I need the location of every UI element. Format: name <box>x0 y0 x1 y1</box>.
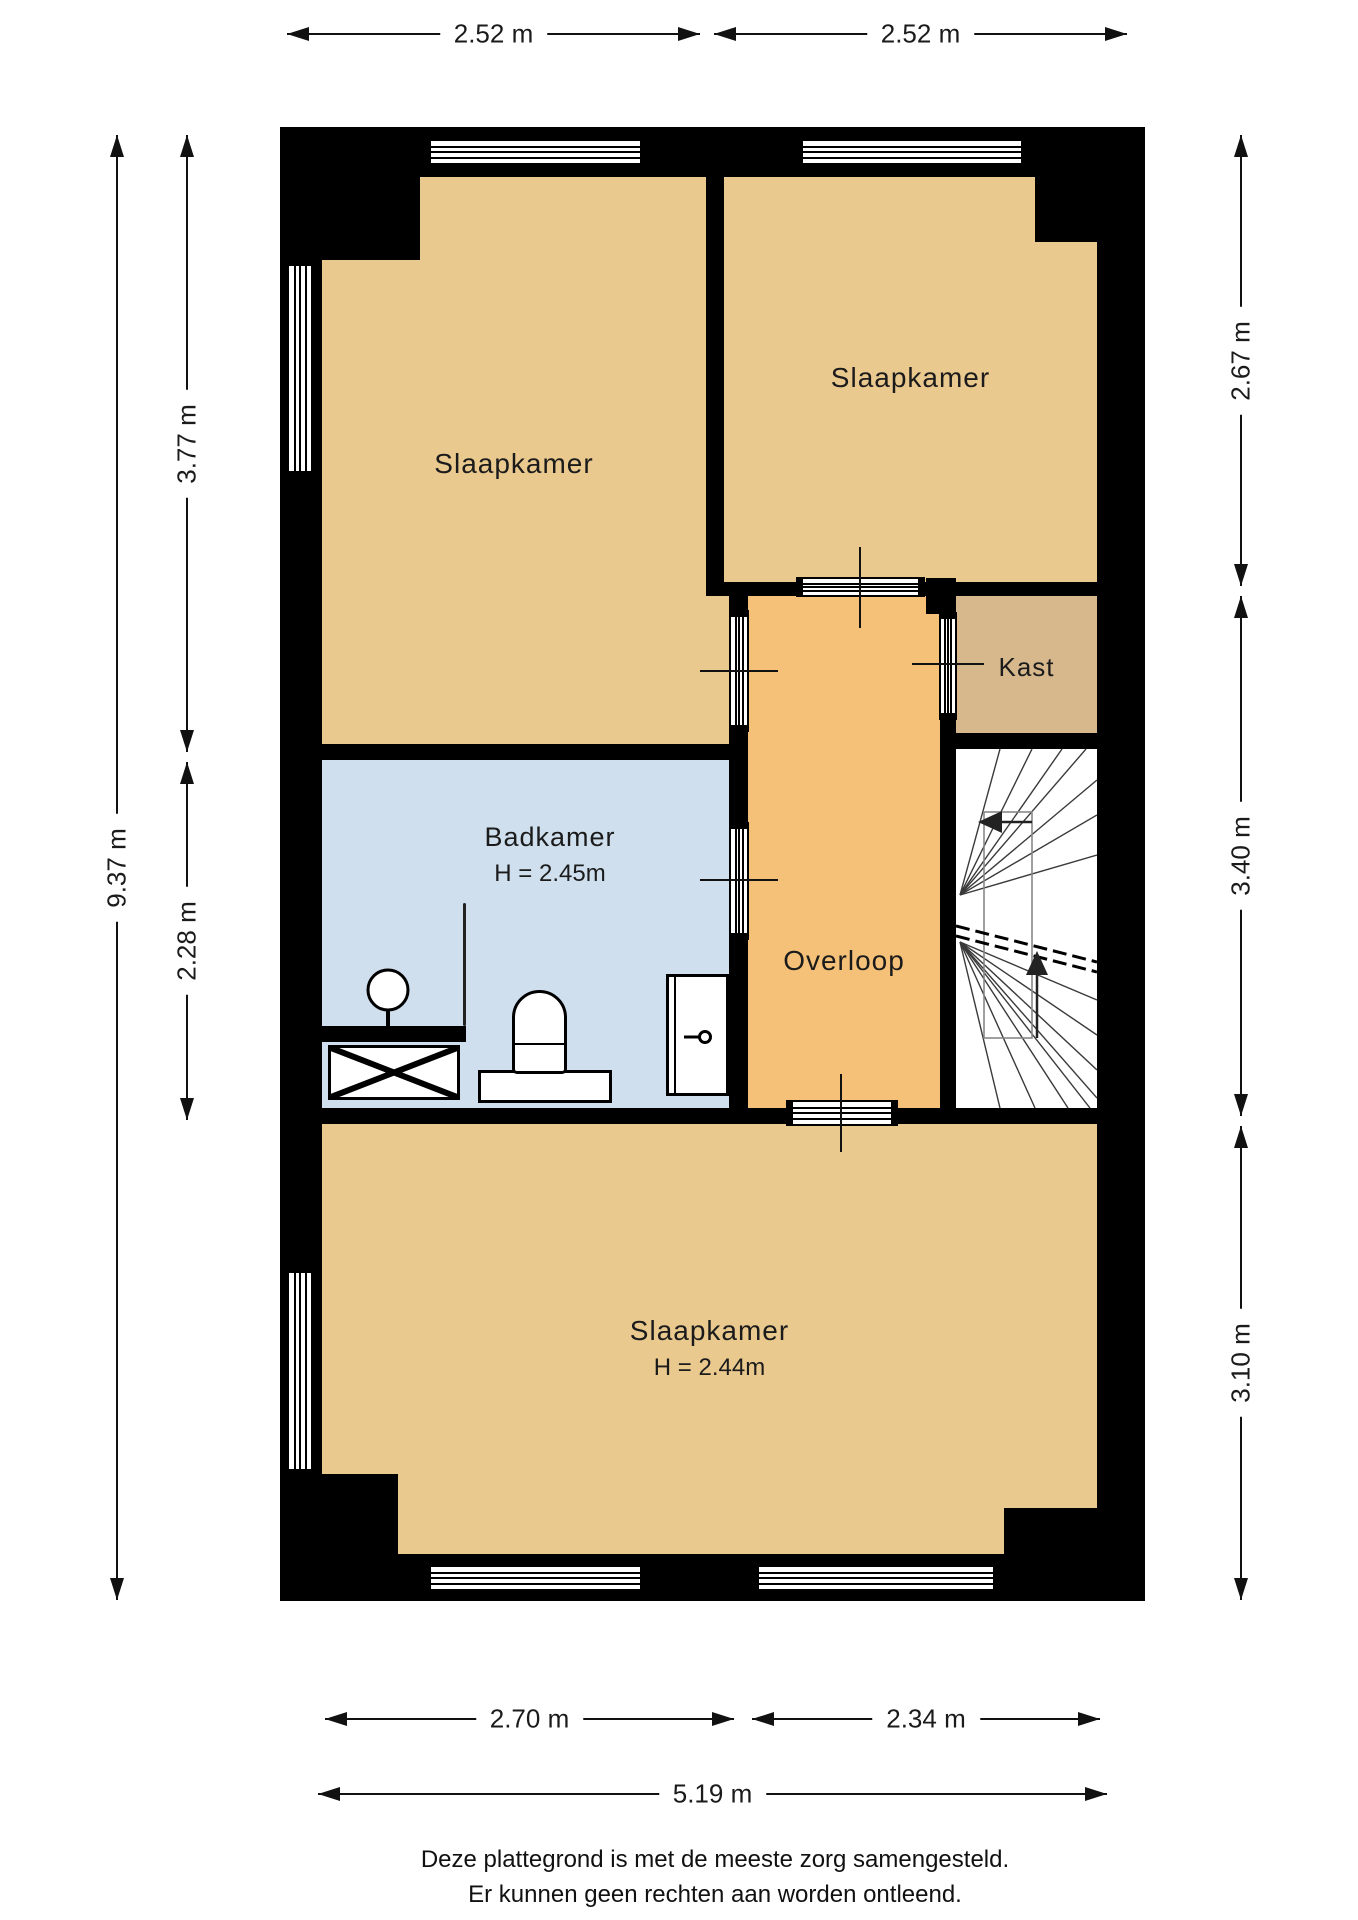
pier-bottom-left <box>280 1474 398 1601</box>
dimension-bottom-total-label: 5.19 m <box>659 1777 767 1812</box>
door-bedroom-bottom-tick <box>840 1074 842 1152</box>
door-closet <box>939 612 957 720</box>
staircase <box>956 749 1097 1108</box>
duct-hatch-icon <box>328 1045 460 1100</box>
dimension-top-right: 2.52 m <box>714 33 1127 35</box>
door-bedroom-top-left-tick <box>700 670 778 672</box>
dimension-left-total: 9.37 m <box>116 135 118 1600</box>
dimension-left-total-label: 9.37 m <box>100 814 135 922</box>
disclaimer-line-2: Er kunnen geen rechten aan worden ontlee… <box>180 1877 1250 1912</box>
window-bottom-right <box>752 1565 1000 1591</box>
room-landing <box>748 596 940 1108</box>
dimension-right-top: 2.67 m <box>1240 135 1242 586</box>
door-bedroom-top-right-tick <box>859 547 861 628</box>
dimension-right-middle: 3.40 m <box>1240 596 1242 1116</box>
floor-plan: 2.52 m 2.52 m 9.37 m 3.77 m 2.28 m 2.67 … <box>0 0 1358 1920</box>
window-top-right <box>796 139 1028 165</box>
duct-hatch-cross <box>331 1048 457 1097</box>
dimension-bottom-total: 5.19 m <box>318 1793 1107 1795</box>
dimension-left-upper: 3.77 m <box>186 135 188 752</box>
pier-landing-closet <box>926 578 956 614</box>
label-closet: Kast <box>956 652 1097 683</box>
dimension-top-left-label: 2.52 m <box>440 17 548 52</box>
shower-screen <box>463 903 466 1026</box>
dimension-top-right-label: 2.52 m <box>867 17 975 52</box>
window-top-left <box>424 139 647 165</box>
label-bathroom-height: H = 2.45m <box>360 860 740 888</box>
dimension-top-left: 2.52 m <box>287 33 700 35</box>
label-bedroom-bottom: Slaapkamer <box>322 1315 1097 1347</box>
pier-top-left <box>280 127 420 260</box>
cabinet-handle-icon <box>684 1027 714 1047</box>
label-landing: Overloop <box>748 945 940 977</box>
dimension-right-bottom-label: 3.10 m <box>1224 1309 1259 1417</box>
dimension-right-top-label: 2.67 m <box>1224 307 1259 415</box>
disclaimer-line-1: Deze plattegrond is met de meeste zorg s… <box>180 1842 1250 1877</box>
dimension-right-bottom: 3.10 m <box>1240 1126 1242 1600</box>
toilet-icon <box>512 990 567 1074</box>
pier-bottom-right <box>1004 1508 1145 1601</box>
dimension-left-lower-label: 2.28 m <box>170 887 205 995</box>
dimension-bottom-right: 2.34 m <box>752 1718 1100 1720</box>
door-bedroom-bottom <box>786 1100 898 1126</box>
stairs-up-arrow-icon <box>1026 951 1048 1038</box>
dimension-right-middle-label: 3.40 m <box>1224 802 1259 910</box>
label-bedroom-top-left: Slaapkamer <box>322 448 706 480</box>
pier-top-right <box>1035 127 1145 242</box>
window-left-lower <box>287 1266 313 1476</box>
disclaimer: Deze plattegrond is met de meeste zorg s… <box>180 1842 1250 1912</box>
label-bedroom-bottom-height: H = 2.44m <box>322 1354 1097 1382</box>
dimension-left-upper-label: 3.77 m <box>170 390 205 498</box>
bathroom-stub-wall <box>322 1026 466 1042</box>
dimension-bottom-right-label: 2.34 m <box>872 1702 980 1737</box>
window-left-upper <box>287 259 313 478</box>
label-bedroom-top-right: Slaapkamer <box>724 362 1097 394</box>
window-bottom-left <box>424 1565 647 1591</box>
dimension-bottom-left-label: 2.70 m <box>476 1702 584 1737</box>
dimension-left-lower: 2.28 m <box>186 762 188 1120</box>
dimension-bottom-left: 2.70 m <box>325 1718 734 1720</box>
label-bathroom: Badkamer <box>360 822 740 853</box>
toilet-platform <box>478 1070 612 1103</box>
